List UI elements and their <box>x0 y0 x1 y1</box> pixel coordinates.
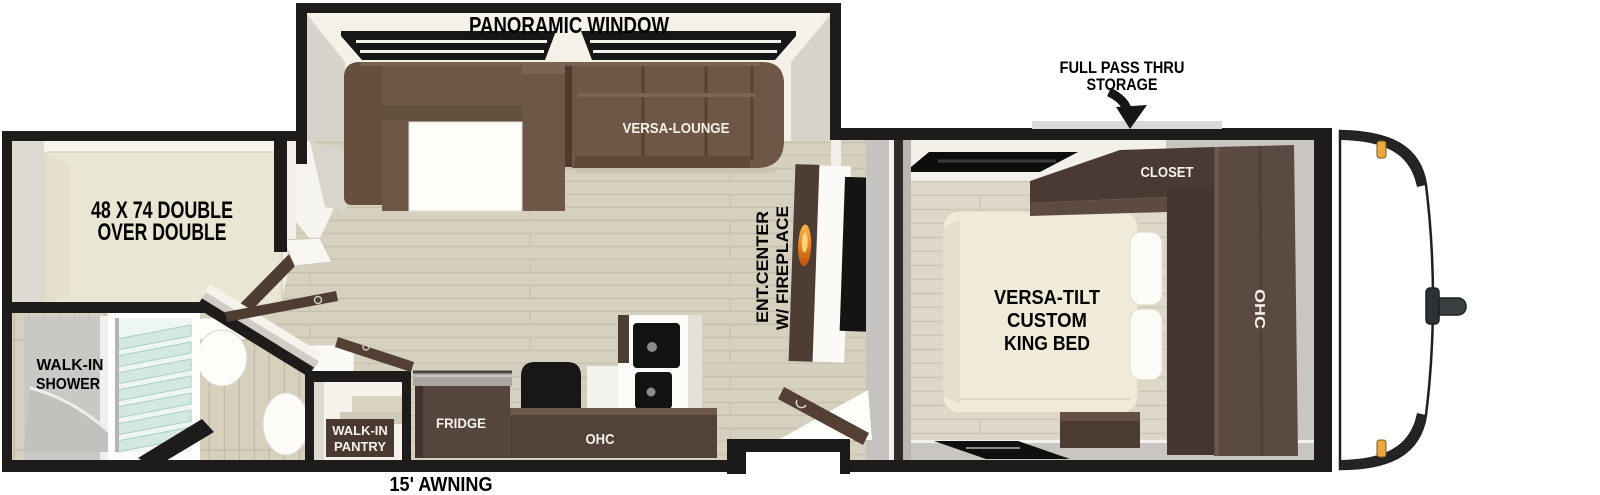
svg-text:KING BED: KING BED <box>1004 332 1090 355</box>
svg-text:PANTRY: PANTRY <box>334 439 386 454</box>
svg-text:ENT.CENTER: ENT.CENTER <box>753 211 772 323</box>
svg-text:VERSA-LOUNGE: VERSA-LOUNGE <box>623 120 730 137</box>
svg-text:FRIDGE: FRIDGE <box>436 415 486 431</box>
svg-text:PANORAMIC WINDOW: PANORAMIC WINDOW <box>469 12 669 38</box>
svg-text:STORAGE: STORAGE <box>1087 76 1158 94</box>
svg-text:CLOSET: CLOSET <box>1141 165 1194 181</box>
svg-text:W/ FIREPLACE: W/ FIREPLACE <box>773 206 792 330</box>
svg-text:SHOWER: SHOWER <box>36 376 100 393</box>
svg-text:OHC: OHC <box>586 431 615 448</box>
svg-text:WALK-IN: WALK-IN <box>332 423 388 438</box>
svg-text:OHC: OHC <box>1251 289 1267 330</box>
svg-text:15' AWNING: 15' AWNING <box>390 474 493 495</box>
svg-text:VERSA-TILT: VERSA-TILT <box>994 286 1100 309</box>
svg-text:OVER DOUBLE: OVER DOUBLE <box>98 219 227 246</box>
svg-text:WALK-IN: WALK-IN <box>37 357 104 374</box>
svg-text:FULL PASS THRU: FULL PASS THRU <box>1060 59 1185 77</box>
svg-text:CUSTOM: CUSTOM <box>1007 309 1087 332</box>
